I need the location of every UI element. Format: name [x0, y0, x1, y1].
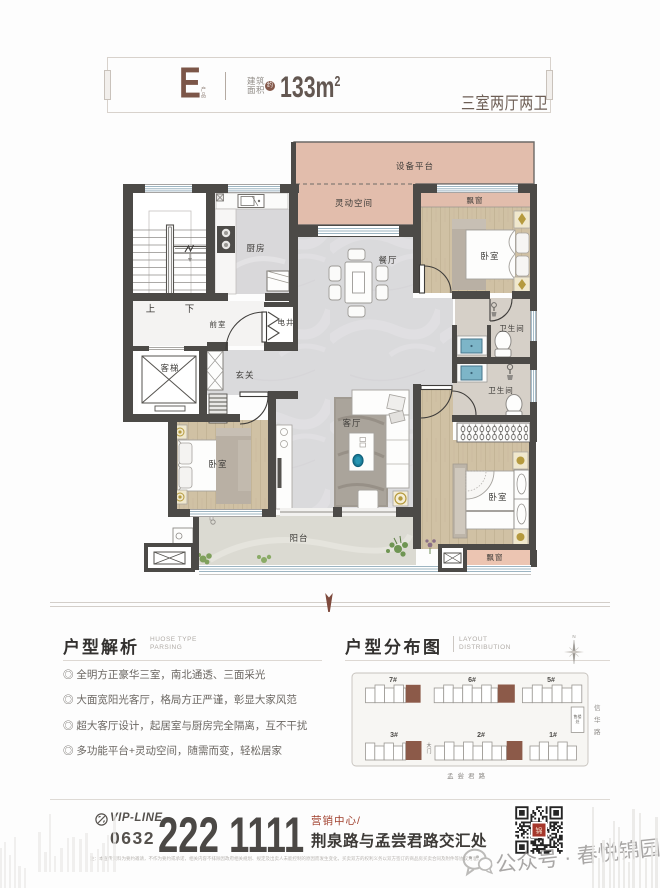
svg-text:设备平台: 设备平台: [396, 161, 434, 171]
svg-text:大: 大: [426, 742, 431, 749]
svg-text:处: 处: [576, 718, 580, 724]
svg-text:华: 华: [594, 715, 601, 724]
svg-text:飘窗: 飘窗: [487, 552, 504, 562]
svg-text:客梯: 客梯: [160, 363, 179, 373]
svg-text:门: 门: [426, 748, 431, 755]
svg-text:3#: 3#: [390, 732, 398, 739]
svg-text:2#: 2#: [477, 732, 485, 739]
svg-text:客厅: 客厅: [342, 418, 361, 428]
svg-text:下: 下: [185, 304, 196, 315]
svg-text:N: N: [572, 634, 575, 639]
svg-text:卧室: 卧室: [480, 251, 499, 261]
svg-text:电井: 电井: [278, 317, 295, 327]
svg-text:5#: 5#: [547, 677, 555, 684]
svg-text:餐厅: 餐厅: [378, 255, 397, 265]
svg-text:锦: 锦: [536, 826, 543, 835]
svg-text:飘窗: 飘窗: [467, 195, 484, 205]
svg-text:前室: 前室: [210, 319, 227, 329]
svg-text:信: 信: [594, 703, 601, 712]
svg-text:卫生间: 卫生间: [488, 385, 514, 395]
svg-text:孟尝君路: 孟尝君路: [447, 771, 489, 780]
svg-text:灵动空间: 灵动空间: [335, 198, 373, 208]
svg-text:7#: 7#: [389, 677, 397, 684]
svg-text:上: 上: [146, 304, 157, 315]
svg-text:玄关: 玄关: [235, 370, 254, 380]
svg-text:6#: 6#: [468, 677, 476, 684]
svg-text:卧室: 卧室: [488, 492, 507, 502]
svg-text:1#: 1#: [549, 732, 557, 739]
svg-text:注：本宣传资料为要约邀请，不作为要约或承诺，相关内容不排除因: 注：本宣传资料为要约邀请，不作为要约或承诺，相关内容不排除因政府相关规划、规定及…: [90, 855, 482, 862]
svg-text:阳台: 阳台: [289, 533, 308, 543]
svg-text:卫生间: 卫生间: [499, 323, 525, 333]
svg-text:路: 路: [594, 727, 601, 736]
svg-text:卧室: 卧室: [208, 459, 227, 469]
svg-text:厨房: 厨房: [246, 243, 265, 253]
